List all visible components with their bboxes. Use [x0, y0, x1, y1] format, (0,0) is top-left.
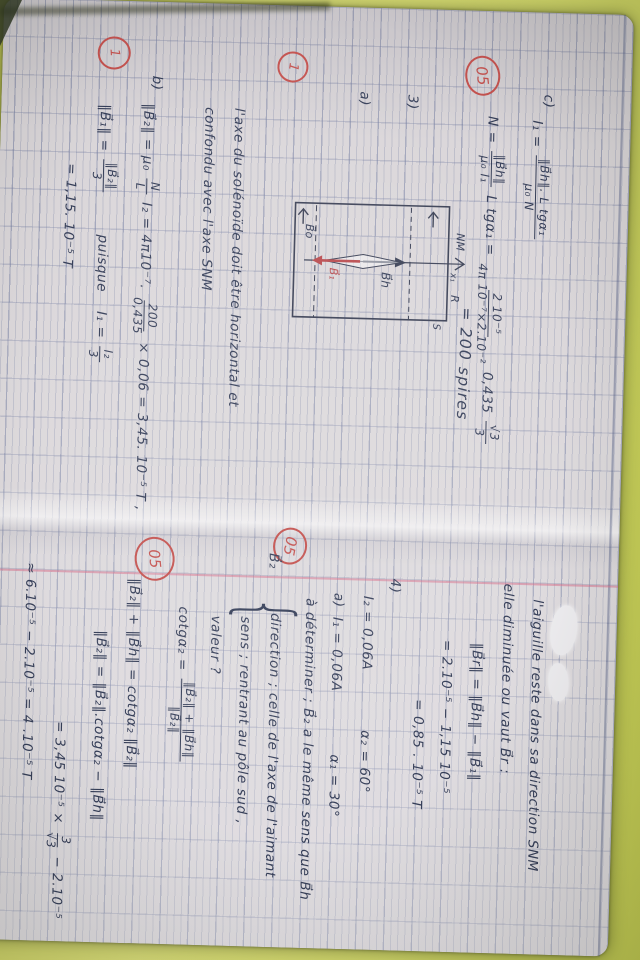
whiteout-blob	[547, 604, 580, 657]
line-b-3: = 1,15. 10⁻⁵ T	[58, 163, 78, 268]
line-c-i1: I₁ = ‖B⃗h‖. L tgα₁μ₀ N	[521, 120, 550, 242]
fraction: ‖B⃗₂‖3	[90, 159, 117, 193]
label-3: 3)	[404, 95, 420, 110]
fraction: ‖B⃗₂‖ + ‖B⃗h‖‖B⃗₂‖	[167, 679, 195, 762]
label-b2-vector: B⃗₂	[265, 553, 281, 569]
label-nm: NM	[453, 233, 467, 252]
page-top-rule	[598, 15, 626, 957]
b1-vector-red	[319, 260, 360, 261]
line-r-eq4: ≈ 6.10⁻⁵ − 2.10⁻⁵ = 4 .10⁻⁵ T	[18, 562, 38, 780]
whiteout-blob	[548, 663, 570, 702]
fraction: √33	[472, 421, 499, 444]
line-r-det: à déterminer ; B⃗₂ a le même sens que B⃗…	[296, 598, 318, 901]
red-margin-line	[0, 568, 618, 588]
label-x1: x₁	[447, 272, 457, 283]
line-r-eq2: ‖B⃗₂‖ = ‖B⃗₂‖.cotgα₂ − ‖B⃗h‖	[88, 630, 108, 821]
line-r-2: elle diminuée ou vaut B⃗r :	[496, 584, 515, 775]
line-axis-note-1: l'axe du solénoïde doit être horizontal …	[224, 108, 246, 407]
label-bo: B⃗o	[303, 224, 317, 239]
line-r-direction: direction ; celle de l'axe de l'aimant	[261, 613, 282, 878]
b1-arrowhead-icon	[312, 255, 322, 265]
solenoid-diagram: NM x₁ R S B⃗h B⃗₁ B⃗o	[275, 200, 474, 350]
label-b: b)	[148, 76, 164, 91]
line-r-i2: I₂ = 0,06A α₂ = 60°	[355, 596, 375, 794]
point-badge-a: 1	[276, 50, 311, 85]
grade-badge-top: 05	[463, 54, 502, 98]
grade-badge-low: 05	[133, 535, 177, 583]
label-s: S	[430, 323, 441, 330]
label-b1-red: B⃗₁	[327, 268, 341, 280]
label-bh: B⃗h	[378, 272, 393, 288]
fraction: 2 10⁻⁵4π 10⁻⁷×2.10⁻²	[474, 263, 503, 364]
notebook-page: 05 c) I₁ = ‖B⃗h‖. L tgα₁μ₀ N N = ‖B⃗h‖μ₀…	[0, 0, 634, 957]
line-b-2: ‖B⃗₁‖ = ‖B⃗₂‖3 puisque I₁ = I₂3	[86, 104, 118, 365]
fraction: I₂3	[86, 346, 113, 362]
fraction: ‖B⃗h‖. L tgα₁μ₀ N	[521, 155, 549, 239]
label-c: c)	[540, 95, 556, 109]
fraction: 3√3	[44, 832, 71, 849]
fraction: ‖B⃗h‖μ₀ I₁	[478, 151, 505, 188]
fraction: NL	[133, 179, 160, 195]
line-r-eq1: ‖B⃗₂‖ + ‖B⃗h‖ = cotgα₂ ‖B⃗₂‖	[122, 578, 142, 769]
line-c-n: N = ‖B⃗h‖μ₀ I₁ L tgα₁ = 2 10⁻⁵4π 10⁻⁷×2.…	[472, 116, 506, 447]
point-badge-b: 1	[97, 36, 132, 71]
label-3a: a)	[356, 91, 372, 106]
fraction: 2000,435	[130, 297, 158, 335]
line-r-eq3: = 3,45 10⁻⁵ × 3√3 − 2.10⁻⁵	[42, 721, 73, 920]
line-r-cotg: cotgα₂ = ‖B⃗₂‖ + ‖B⃗h‖‖B⃗₂‖	[167, 606, 197, 764]
line-r-3: ‖B⃗r‖ = ‖B⃗h‖ − ‖B⃗₁‖	[466, 643, 484, 782]
line-r-5: = 0,85 . 10⁻⁵ T	[408, 699, 426, 809]
label-4: 4)	[386, 578, 402, 593]
line-b-1: ‖B⃗₂‖ = μ₀ NL I₂ = 4π10⁻⁷. 2000,435 × 0,…	[127, 103, 162, 511]
line-axis-note-2: confondu avec l'axe SNM	[197, 107, 216, 291]
label-4a: a)	[330, 593, 346, 608]
line-r-1: l'aiguille reste dans sa direction SNM	[523, 599, 544, 872]
photo-background: 05 c) I₁ = ‖B⃗h‖. L tgα₁μ₀ N N = ‖B⃗h‖μ₀…	[0, 0, 640, 960]
line-r-sens: sens ; rentrant au pôle sud ,	[232, 616, 252, 824]
line-r-valeur: valeur ?	[206, 615, 223, 674]
label-r: R	[448, 295, 461, 303]
dashed-axis-line	[408, 208, 411, 320]
line-r-4: = 2.10⁻⁵ − 1,15 10⁻⁵	[435, 640, 454, 794]
line-r-i1: I₁ = 0,06A α₁ = 30°	[325, 617, 345, 818]
